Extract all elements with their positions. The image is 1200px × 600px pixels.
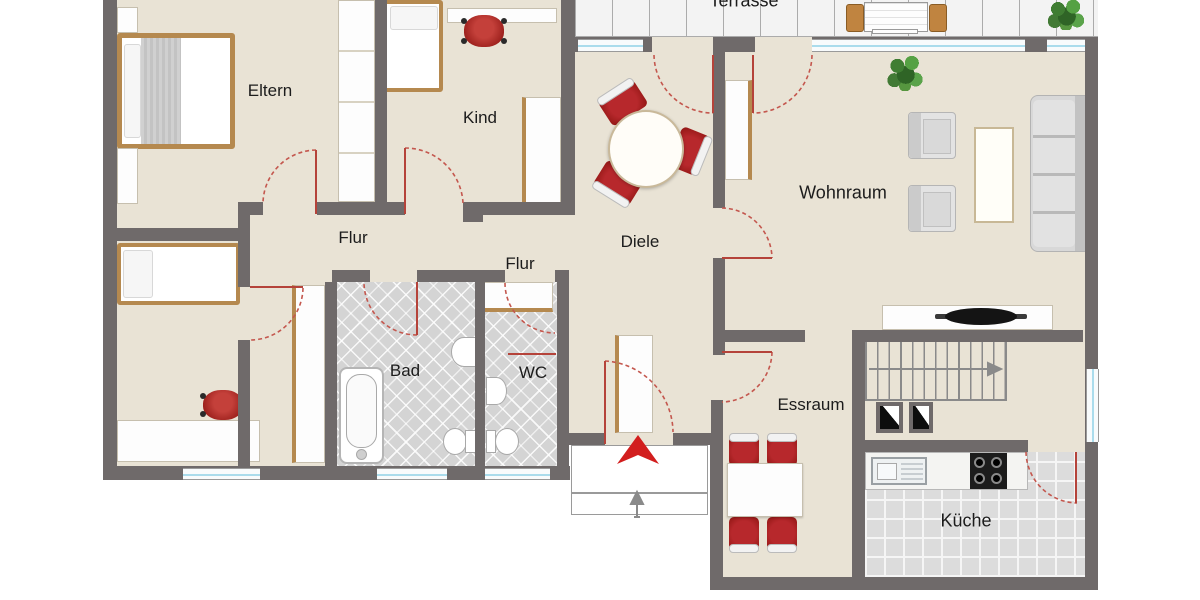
window-wohnraum-terrasse-1: [812, 39, 890, 52]
sofa-cushions: [1033, 100, 1075, 247]
armchair-seat: [923, 192, 951, 227]
wall-bad-west: [325, 282, 337, 466]
chair-backrest: [729, 544, 759, 553]
window-wohnraum-terrasse-2: [890, 39, 1025, 52]
bed-pillow: [123, 250, 153, 298]
window-wohnraum-terrasse-3: [1047, 39, 1085, 52]
armchair-back: [909, 186, 921, 231]
armchair-back: [909, 113, 921, 158]
entrance-porch: [571, 445, 708, 493]
bed-pillow: [390, 6, 438, 30]
essraum-chair-3: [729, 517, 759, 550]
armchair-seat: [923, 119, 951, 154]
room-label-flur-lower: Flur: [505, 254, 534, 274]
essraum-chair-2: [767, 436, 797, 466]
sofa: [1030, 95, 1086, 252]
window-glass: [890, 45, 1025, 47]
wall-essraum-west: [710, 433, 723, 590]
sink-basin: [877, 463, 897, 480]
window-glass: [1092, 369, 1094, 442]
bathtub-basin: [346, 374, 377, 448]
room-label-essraum: Essraum: [777, 395, 844, 415]
room-label-kueche: Küche: [940, 511, 991, 532]
window-glass: [377, 474, 447, 476]
terrasse-bench: [872, 29, 918, 34]
wall-diele-spine-a: [713, 37, 725, 208]
wall-eltern-kind: [375, 0, 387, 215]
window-diele-terrasse: [578, 39, 643, 52]
bad-toilet-bowl: [443, 428, 467, 455]
terrasse-floor: [575, 0, 1098, 37]
chimney-shaft-2: [909, 402, 933, 433]
terrasse-door-opening-right: [755, 37, 812, 52]
wall-diele-spine-c: [711, 400, 723, 445]
wc-sink: [486, 377, 507, 405]
wall-kind-diele: [561, 0, 575, 215]
wall-bad-wc: [475, 282, 485, 466]
front-door-gap-floor: [605, 433, 673, 445]
nook-closet: [292, 285, 325, 463]
room-label-terrasse: Terrasse: [709, 0, 778, 12]
wall-nook-a: [238, 215, 250, 287]
terrasse-plant: [1046, 0, 1086, 30]
bed-pillow: [124, 44, 141, 138]
flur-closet: [615, 335, 653, 433]
bed-blanket: [141, 38, 181, 144]
wall-wc-north-end: [555, 270, 569, 282]
diele-closet: [725, 80, 752, 180]
wall-front-a: [569, 433, 605, 445]
window-bad: [377, 468, 447, 480]
stove-cooktop: [970, 453, 1007, 489]
wall-flur-north-b: [317, 202, 405, 215]
window-kind-bottom: [183, 468, 260, 480]
kind-bottom-desk-chair: [203, 390, 243, 420]
sink-drainer: [901, 463, 923, 480]
chair-backrest: [729, 433, 759, 442]
terrasse-door-pillar: [643, 37, 652, 52]
essraum-chair-1: [729, 436, 759, 466]
stove-burner: [974, 473, 985, 484]
window-glass: [485, 474, 550, 476]
outer-wall-bottom-right: [710, 577, 1098, 590]
tv-screen: [945, 308, 1017, 325]
wall-flur-north-a: [238, 202, 263, 215]
window-glass: [1047, 45, 1085, 47]
outer-wall-right: [1085, 37, 1098, 590]
eltern-closet-bottom: [117, 148, 138, 204]
window-stairs-east: [1086, 369, 1099, 442]
room-label-wc: WC: [519, 363, 547, 383]
stove-burner: [991, 473, 1002, 484]
coffee-table: [974, 127, 1014, 223]
window-glass: [578, 45, 643, 47]
wall-bad-north-b: [417, 270, 505, 282]
terrasse-chair-left: [846, 4, 864, 32]
wohnraum-plant: [886, 55, 924, 91]
sofa-backrest: [1075, 96, 1085, 251]
room-label-bad: Bad: [390, 361, 420, 381]
wc-closet: [483, 282, 553, 312]
wall-wohnraum-south-b: [853, 330, 1083, 342]
wall-nook-b: [238, 340, 250, 466]
essraum-chair-4: [767, 517, 797, 550]
terrasse-door-opening-left: [652, 37, 713, 52]
diele-round-table: [608, 110, 684, 188]
room-label-flur-upper: Flur: [338, 228, 367, 248]
wall-diele-spine-b: [713, 258, 725, 355]
room-label-wohnraum: Wohnraum: [799, 183, 887, 204]
wc-toilet-bowl: [495, 428, 519, 455]
kind-top-bed: [383, 0, 443, 92]
wall-kind-bottom-north: [103, 228, 250, 241]
stove-burner: [974, 457, 985, 468]
terrasse-table: [864, 2, 928, 32]
chimney-shaft-1: [876, 402, 903, 433]
kind-bottom-bed: [117, 243, 240, 305]
kind-top-desk-chair: [464, 15, 504, 47]
room-label-eltern: Eltern: [248, 81, 292, 101]
essraum-table: [727, 463, 803, 517]
room-label-diele: Diele: [621, 232, 660, 252]
stove-burner: [991, 457, 1002, 468]
chair-backrest: [767, 433, 797, 442]
eltern-double-bed: [117, 33, 235, 149]
wall-flur-north-c: [483, 202, 561, 215]
wall-essraum-kueche: [852, 330, 865, 590]
bad-sink: [451, 337, 477, 367]
window-glass: [183, 474, 260, 476]
bathtub: [339, 367, 384, 464]
chair-backrest: [767, 544, 797, 553]
terrasse-chair-right: [929, 4, 947, 32]
room-label-kind-top: Kind: [463, 108, 497, 128]
wall-bad-north-a: [332, 270, 370, 282]
kitchen-sink: [871, 457, 927, 485]
window-glass: [812, 45, 890, 47]
wall-wohnraum-south-a: [725, 330, 805, 342]
armchair-1: [908, 112, 956, 159]
eltern-closet-top: [117, 7, 138, 33]
entrance-step: [571, 493, 708, 515]
bathtub-faucet: [356, 449, 367, 460]
staircase: [865, 340, 1007, 401]
armchair-2: [908, 185, 956, 232]
wall-kueche-north: [865, 440, 1028, 452]
window-wc: [485, 468, 550, 480]
wall-wc-east: [557, 282, 569, 480]
wall-flur-north-corner: [463, 202, 483, 222]
kind-top-closet: [522, 97, 561, 203]
floorplan-canvas: { "plan": { "type": "apartment-floorplan…: [0, 0, 1200, 600]
eltern-wardrobe: [338, 0, 375, 202]
